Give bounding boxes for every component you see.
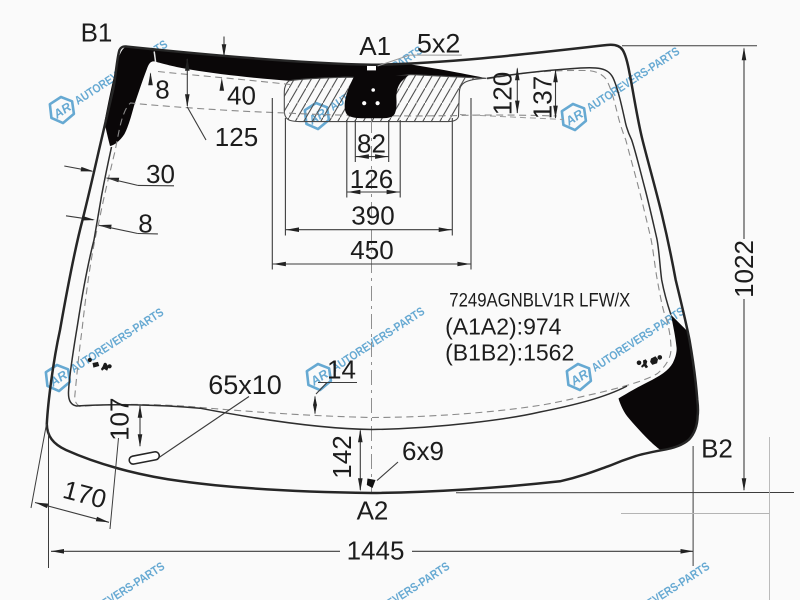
svg-text:B2: B2: [701, 434, 733, 464]
svg-text:B1: B1: [81, 18, 113, 48]
svg-text:126: 126: [350, 164, 393, 194]
svg-text:1022: 1022: [729, 240, 759, 298]
svg-text:65x10: 65x10: [208, 370, 282, 400]
svg-text:5x2: 5x2: [417, 29, 461, 59]
svg-text:142: 142: [327, 435, 357, 478]
svg-text:137: 137: [528, 76, 558, 119]
svg-text:40: 40: [227, 81, 256, 111]
svg-text:1445: 1445: [347, 535, 405, 565]
svg-text:390: 390: [351, 201, 394, 231]
svg-text:30: 30: [146, 159, 175, 189]
svg-text:107: 107: [105, 398, 135, 441]
svg-text:8: 8: [155, 75, 169, 105]
svg-text:14: 14: [327, 355, 356, 385]
svg-text:125: 125: [215, 122, 258, 152]
svg-text:7249AGNBLV1R LFW/X: 7249AGNBLV1R LFW/X: [449, 290, 630, 312]
svg-text:120: 120: [488, 72, 518, 115]
svg-text:8: 8: [138, 209, 152, 239]
svg-text:82: 82: [357, 129, 386, 159]
svg-text:A2: A2: [357, 496, 389, 526]
svg-text:(A1A2):974: (A1A2):974: [445, 314, 562, 340]
svg-text:6x9: 6x9: [402, 436, 444, 466]
svg-text:(B1B2):1562: (B1B2):1562: [445, 340, 574, 366]
svg-text:A1: A1: [359, 31, 391, 61]
svg-text:450: 450: [350, 235, 393, 265]
